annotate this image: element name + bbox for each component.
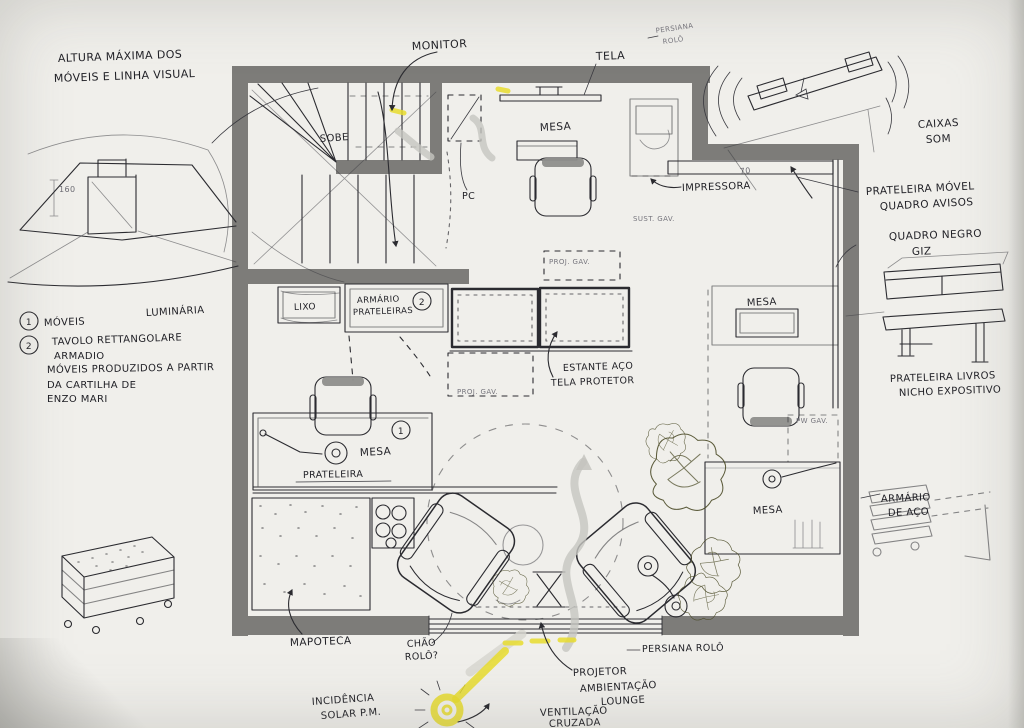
desk-chair-right: [738, 368, 804, 426]
map-cabinet-label: MAPOTECA: [290, 635, 352, 649]
monitor-label: MONITOR: [411, 37, 467, 53]
printer-label: IMPRESSORA: [682, 181, 751, 194]
cabinet-label-2: PRATELEIRAS: [353, 306, 414, 318]
floor-plan-sketch-page: SOBE MESA PC IMPRESSORA SUST. GAV. 70 LI…: [0, 0, 1024, 728]
shelf-sketches: [883, 252, 1008, 362]
upper-room: MESA PC IMPRESSORA SUST. GAV. 70: [392, 87, 833, 248]
roller-blind-top-2: ROLÔ: [662, 34, 684, 46]
armchair-left: [389, 485, 523, 621]
chalkboard-label-1: QUADRO NEGRO: [889, 228, 982, 243]
left-desk: 1 MESA PRATELEIRA: [253, 377, 557, 493]
desk-chair-left: [310, 377, 376, 435]
pc-label: PC: [462, 191, 475, 202]
blackboard-lines: [833, 160, 838, 408]
sun-note-1: INCIDÊNCIA: [311, 691, 374, 708]
lounge-note-1: AMBIENTAÇÃO: [579, 678, 657, 695]
steel-cabinet-label-1: ARMÁRIO: [881, 490, 931, 505]
ventilation-note-2: CRUZADA: [549, 717, 601, 728]
roller-blind-top-1: PERSIANA: [655, 22, 694, 35]
mobile-shelf-label-1: PRATELEIRA MÓVEL: [865, 179, 974, 198]
legend-item-2a: TAVOLO RETTANGOLARE: [51, 332, 183, 348]
proj-gav-top: PROJ. GAV.: [549, 258, 590, 266]
legend-number-1: 1: [26, 318, 32, 328]
floor-note-1: CHÃO: [407, 637, 437, 650]
cabinet-label-1: ARMÁRIO: [357, 293, 400, 306]
roller-blind-bottom: PERSIANA ROLÔ: [642, 642, 724, 655]
desk-top-label: MESA: [540, 120, 572, 134]
book-shelf-label-2: NICHO EXPOSITIVO: [899, 384, 1002, 399]
projector-label: PROJETOR: [573, 666, 628, 679]
speakers-label-2: SOM: [926, 133, 952, 146]
trash-label: LIXO: [294, 302, 316, 313]
proj-gav-bottom: PROJ. GAV.: [457, 388, 498, 396]
chalkboard-label-2: GIZ: [912, 245, 932, 258]
desk-chair-top: [530, 158, 596, 216]
mobile-shelf-label-2: QUADRO AVISOS: [880, 196, 974, 213]
enzo-note-1: MÓVEIS PRODUZIDOS A PARTIR: [47, 360, 215, 376]
desk-left-label: MESA: [360, 445, 392, 459]
printer-box: [630, 99, 678, 176]
map-cabinet-plan: [252, 498, 414, 634]
leader-lines: [392, 36, 884, 498]
cabinet-number: 2: [419, 298, 425, 308]
perspective-sketch: 160: [8, 88, 318, 286]
dim-160: 160: [59, 185, 75, 194]
note-max-height-1: ALTURA MÁXIMA DOS: [58, 48, 183, 65]
map-cabinet-sketch: [62, 537, 174, 634]
armchair-right: [568, 494, 704, 631]
speakers-label-1: CAIXAS: [918, 117, 960, 131]
window-bottom: [429, 607, 662, 635]
legend-item-1: MÓVEIS: [44, 315, 86, 329]
legend-number-2: 2: [26, 342, 32, 352]
sust-gav-note: SUST. GAV.: [633, 215, 675, 223]
legend-item-2b: ARMADIO: [54, 351, 105, 362]
lamp-label: LUMINÁRIA: [145, 303, 204, 319]
enzo-note-3: ENZO MARI: [47, 394, 108, 405]
floor-plan-sketch-svg: SOBE MESA PC IMPRESSORA SUST. GAV. 70 LI…: [0, 0, 1024, 728]
book-shelf-label-1: PRATELEIRA LIVROS: [890, 370, 996, 385]
plants: [487, 418, 750, 630]
screen-label: TELA: [595, 49, 626, 63]
shelf-label: PRATELEIRA: [303, 469, 364, 481]
speaker-shelf-sketch: [703, 52, 908, 190]
steel-shelf-note-1: ESTANTE AÇO: [563, 361, 634, 374]
sun-note-2: SOLAR P.M.: [320, 707, 381, 722]
stairs-up-label: SOBE: [319, 132, 349, 145]
steel-shelf-note-2: TELA PROTETOR: [550, 375, 635, 389]
desk-right-top-label: MESA: [747, 296, 777, 309]
note-max-height-2: MÓVEIS E LINHA VISUAL: [54, 67, 196, 85]
steel-cabinet-label-2: DE AÇO: [888, 507, 929, 519]
right-desks: MESA PW GAV. MESA: [705, 286, 840, 554]
desk-number: 1: [398, 427, 404, 437]
floor-note-2: ROLÔ?: [405, 649, 439, 663]
stairs: SOBE: [250, 83, 436, 282]
desk-right-bottom-label: MESA: [753, 504, 783, 517]
enzo-note-2: DA CARTILHA DE: [47, 380, 136, 391]
pw-gav-note: PW GAV.: [796, 417, 828, 425]
lounge: [389, 418, 751, 648]
